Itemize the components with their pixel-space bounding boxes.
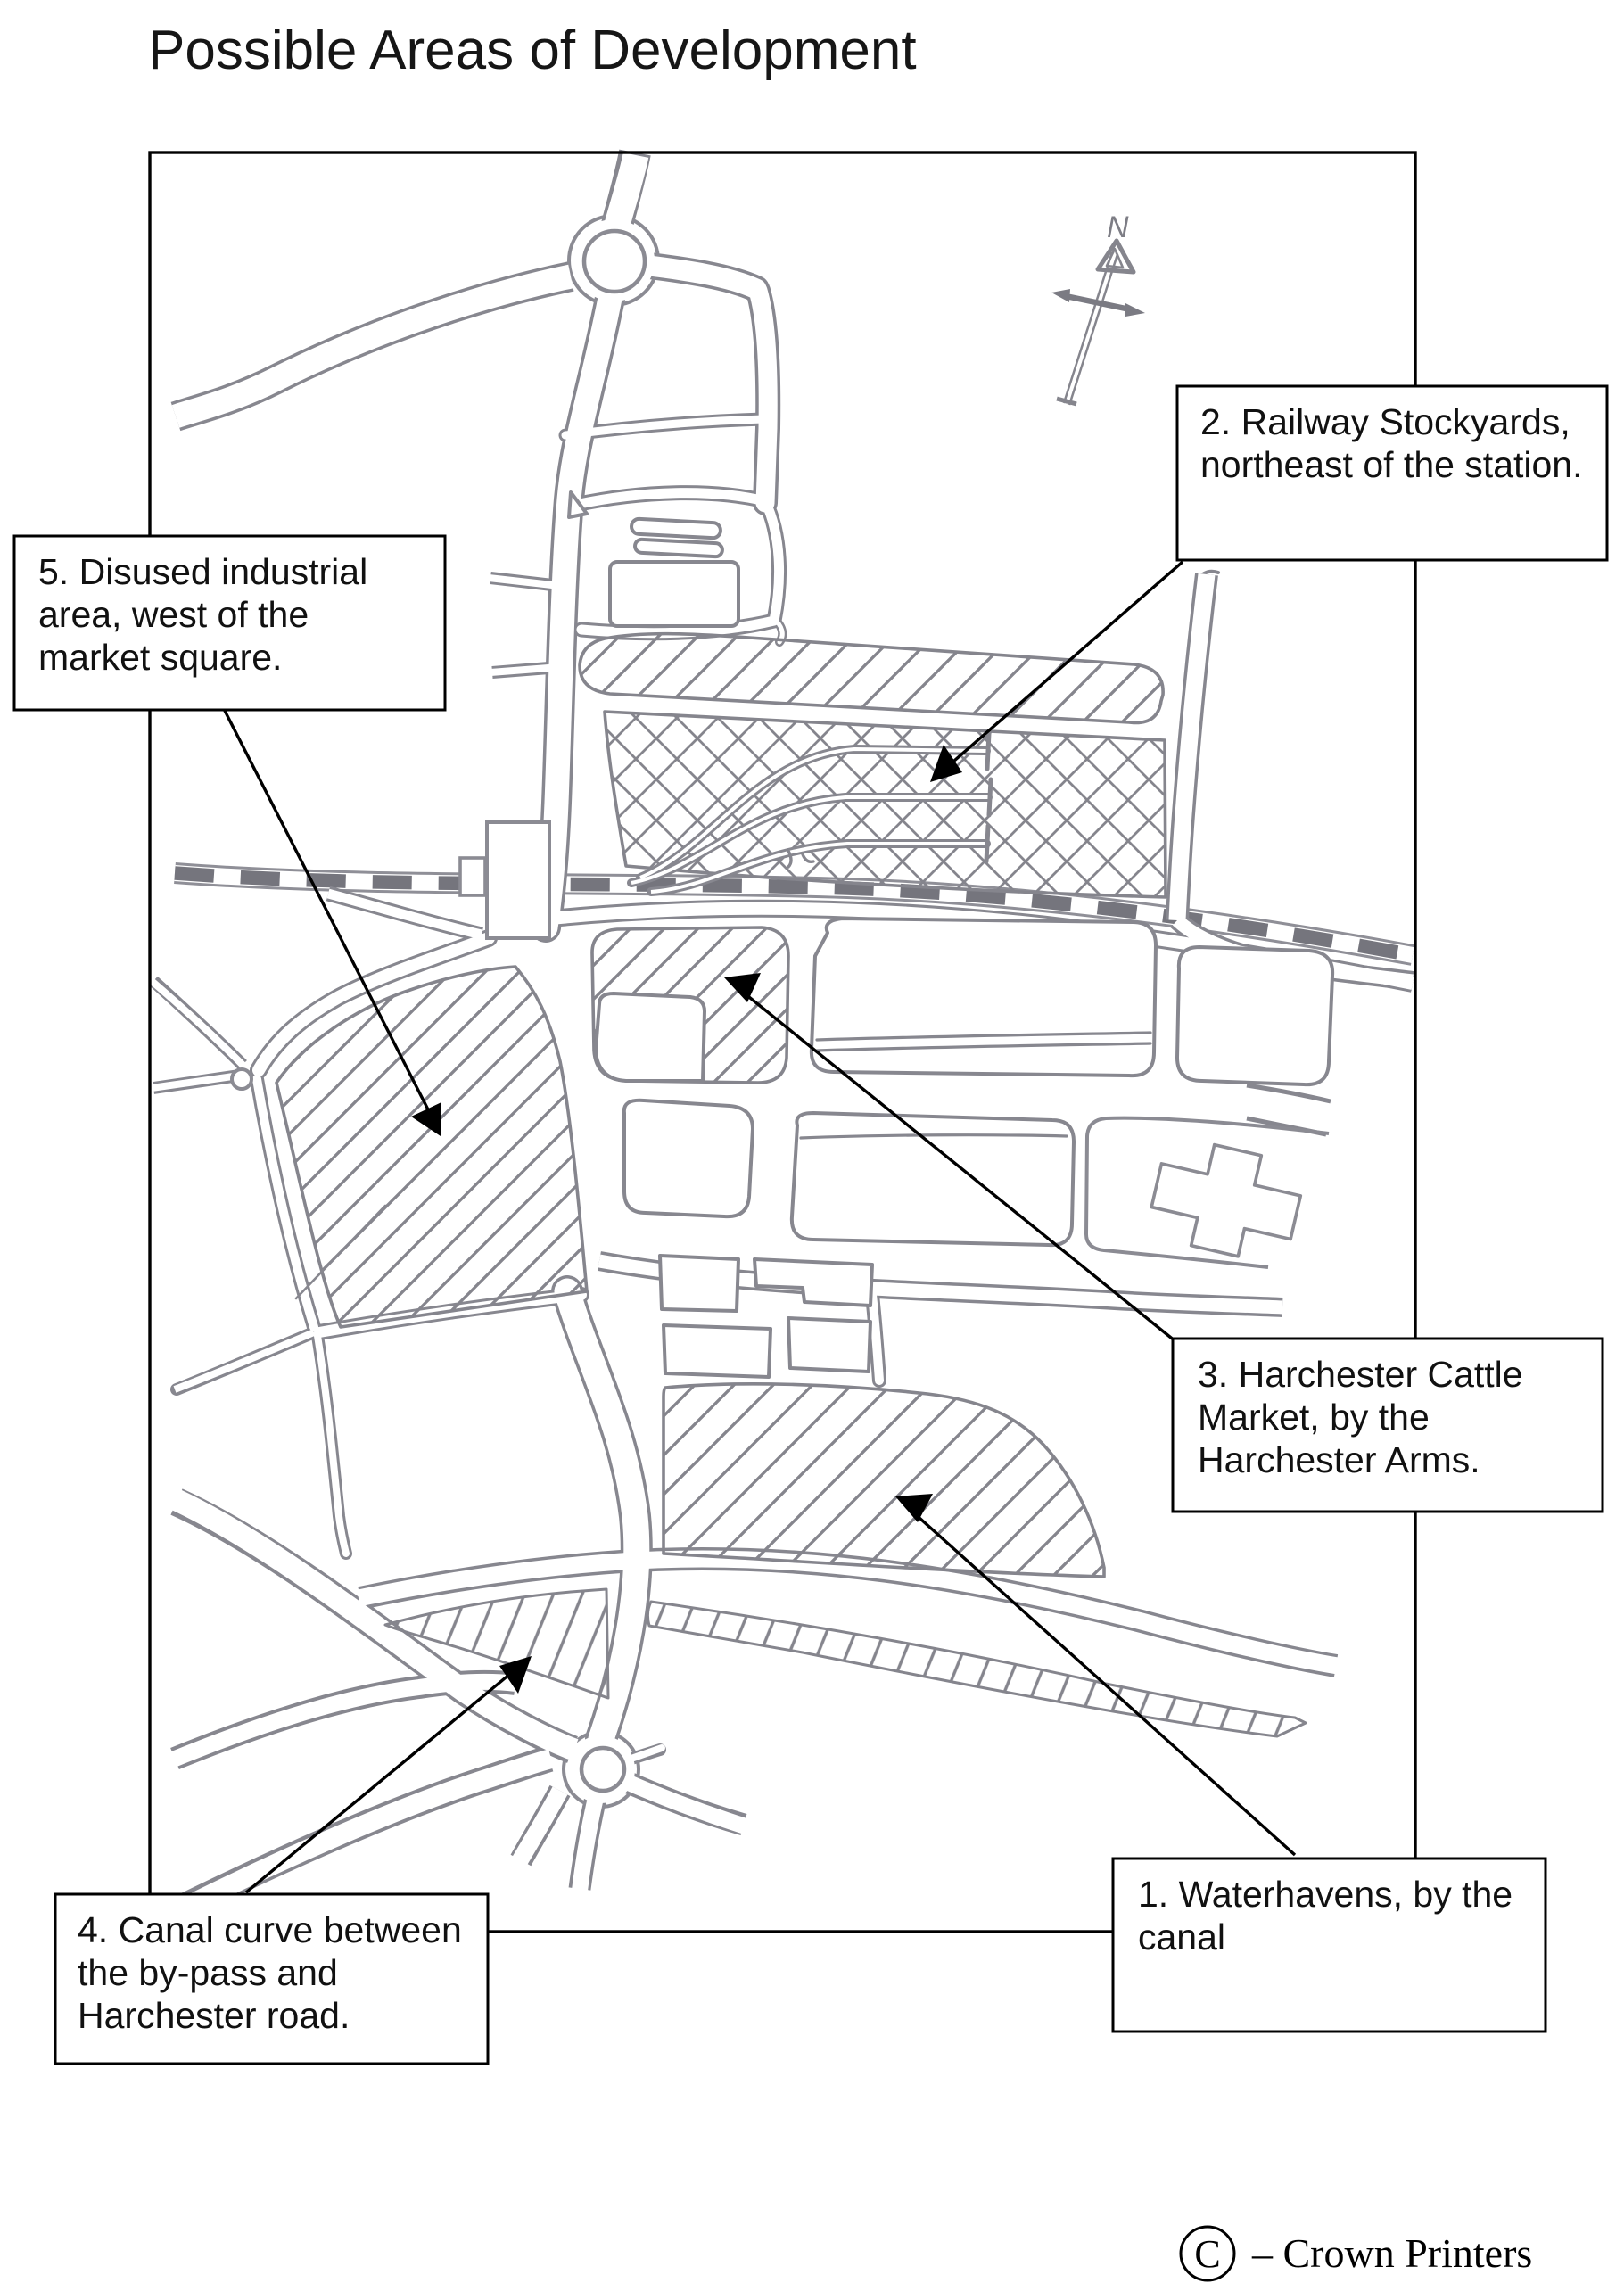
svg-text:Possible Areas of Development: Possible Areas of Development [148,20,917,81]
svg-text:Market, by the: Market, by the [1198,1397,1430,1438]
svg-text:1. Waterhavens, by the: 1. Waterhavens, by the [1138,1874,1513,1915]
svg-text:3. Harchester Cattle: 3. Harchester Cattle [1198,1354,1523,1395]
svg-text:market square.: market square. [38,637,282,678]
svg-text:– Crown Printers: – Crown Printers [1251,2230,1532,2276]
svg-text:Harchester road.: Harchester road. [78,1995,350,2036]
svg-text:area, west of the: area, west of the [38,594,309,635]
svg-text:5. Disused industrial: 5. Disused industrial [38,551,367,592]
svg-text:4. Canal curve between: 4. Canal curve between [78,1909,462,1950]
svg-text:2. Railway Stockyards,: 2. Railway Stockyards, [1200,401,1570,442]
svg-text:northeast of the station.: northeast of the station. [1200,444,1583,485]
svg-text:N: N [1107,210,1129,244]
svg-text:Harchester Arms.: Harchester Arms. [1198,1439,1480,1480]
svg-text:C: C [1194,2232,1220,2276]
svg-text:canal: canal [1138,1916,1225,1957]
svg-text:the by-pass and: the by-pass and [78,1952,338,1993]
